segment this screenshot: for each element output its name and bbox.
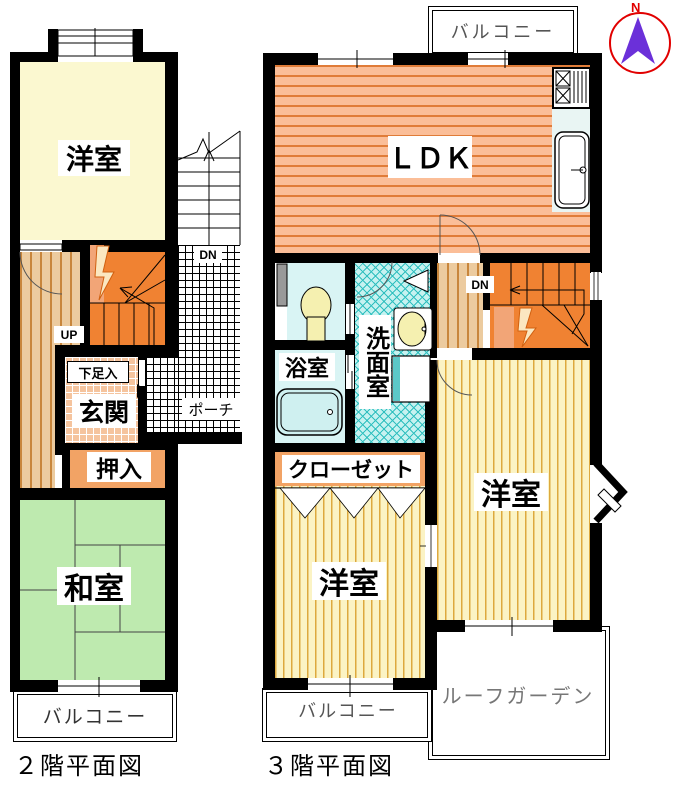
wall <box>472 348 602 360</box>
window-bay-2f <box>58 28 133 56</box>
wall <box>165 432 178 692</box>
wall <box>425 360 437 525</box>
label-senmenshitsu: 洗面室 <box>359 315 391 409</box>
label-ldk: ＬＤＫ <box>388 136 472 178</box>
label-dn-3f: DN <box>466 276 494 293</box>
label-youshitsu-2f: 洋室 <box>58 140 130 176</box>
wall <box>10 52 20 692</box>
label-washitsu: 和室 <box>57 567 131 605</box>
wall <box>10 680 58 692</box>
compass-north-label: N <box>631 0 640 15</box>
wall <box>480 253 602 263</box>
exterior-stairs-2f <box>178 131 240 245</box>
wall <box>133 29 143 62</box>
wall <box>345 262 355 350</box>
wall <box>55 345 178 357</box>
wall <box>55 345 65 455</box>
wall <box>430 262 437 358</box>
label-dn-2f: DN <box>194 246 222 263</box>
staircase-2f <box>90 245 165 357</box>
wall <box>263 340 355 350</box>
wall <box>590 523 602 632</box>
wall <box>590 300 602 465</box>
wall <box>62 443 70 488</box>
window-stairs-3f <box>591 272 601 300</box>
compass-circle <box>609 12 671 74</box>
wall <box>140 680 178 692</box>
wall <box>165 52 178 252</box>
wall <box>10 488 178 500</box>
wall <box>263 53 275 690</box>
wall <box>425 620 437 690</box>
label-youshitsu-3f-center: 洋室 <box>312 562 386 600</box>
label-oshiire: 押入 <box>87 452 151 482</box>
wall <box>508 53 602 65</box>
label-roof-garden: ルーフガーデン <box>440 680 596 708</box>
wall <box>55 443 167 450</box>
floorplan-canvas: 洋室 UP DN 下足入 玄関 ポーチ 押入 和室 バルコニー ２階平面図 バル… <box>0 0 699 800</box>
staircase-3f <box>490 263 590 348</box>
label-balcony-3f-top: バルコニー <box>448 18 558 44</box>
wall <box>138 357 146 443</box>
title-floor2: ２階平面図 <box>14 746 144 781</box>
label-youshitsu-3f-right: 洋室 <box>474 473 548 511</box>
wall <box>263 678 308 690</box>
wall <box>165 245 178 357</box>
label-balcony-3f-bottom: バルコニー <box>292 698 404 722</box>
porch-area-left <box>146 357 178 432</box>
label-up: UP <box>54 326 84 343</box>
label-geta-box: 下足入 <box>67 361 129 383</box>
wall <box>263 443 437 452</box>
label-balcony-2f: バルコニー <box>30 702 160 728</box>
label-genkan: 玄関 <box>72 394 136 428</box>
wall <box>345 350 355 443</box>
title-floor3: ３階平面図 <box>264 746 394 781</box>
wall <box>590 53 602 273</box>
wall <box>393 53 468 65</box>
label-closet: クローゼット <box>282 455 420 483</box>
wall <box>553 620 602 632</box>
kitchen-counter-strip <box>552 67 590 212</box>
pipe-space <box>277 264 287 306</box>
room-toilet <box>287 262 345 340</box>
label-porch: ポーチ <box>182 398 240 420</box>
label-bathroom: 浴室 <box>279 353 335 381</box>
hallway-2f-lower <box>20 345 55 488</box>
corner-bay-door <box>596 463 623 521</box>
